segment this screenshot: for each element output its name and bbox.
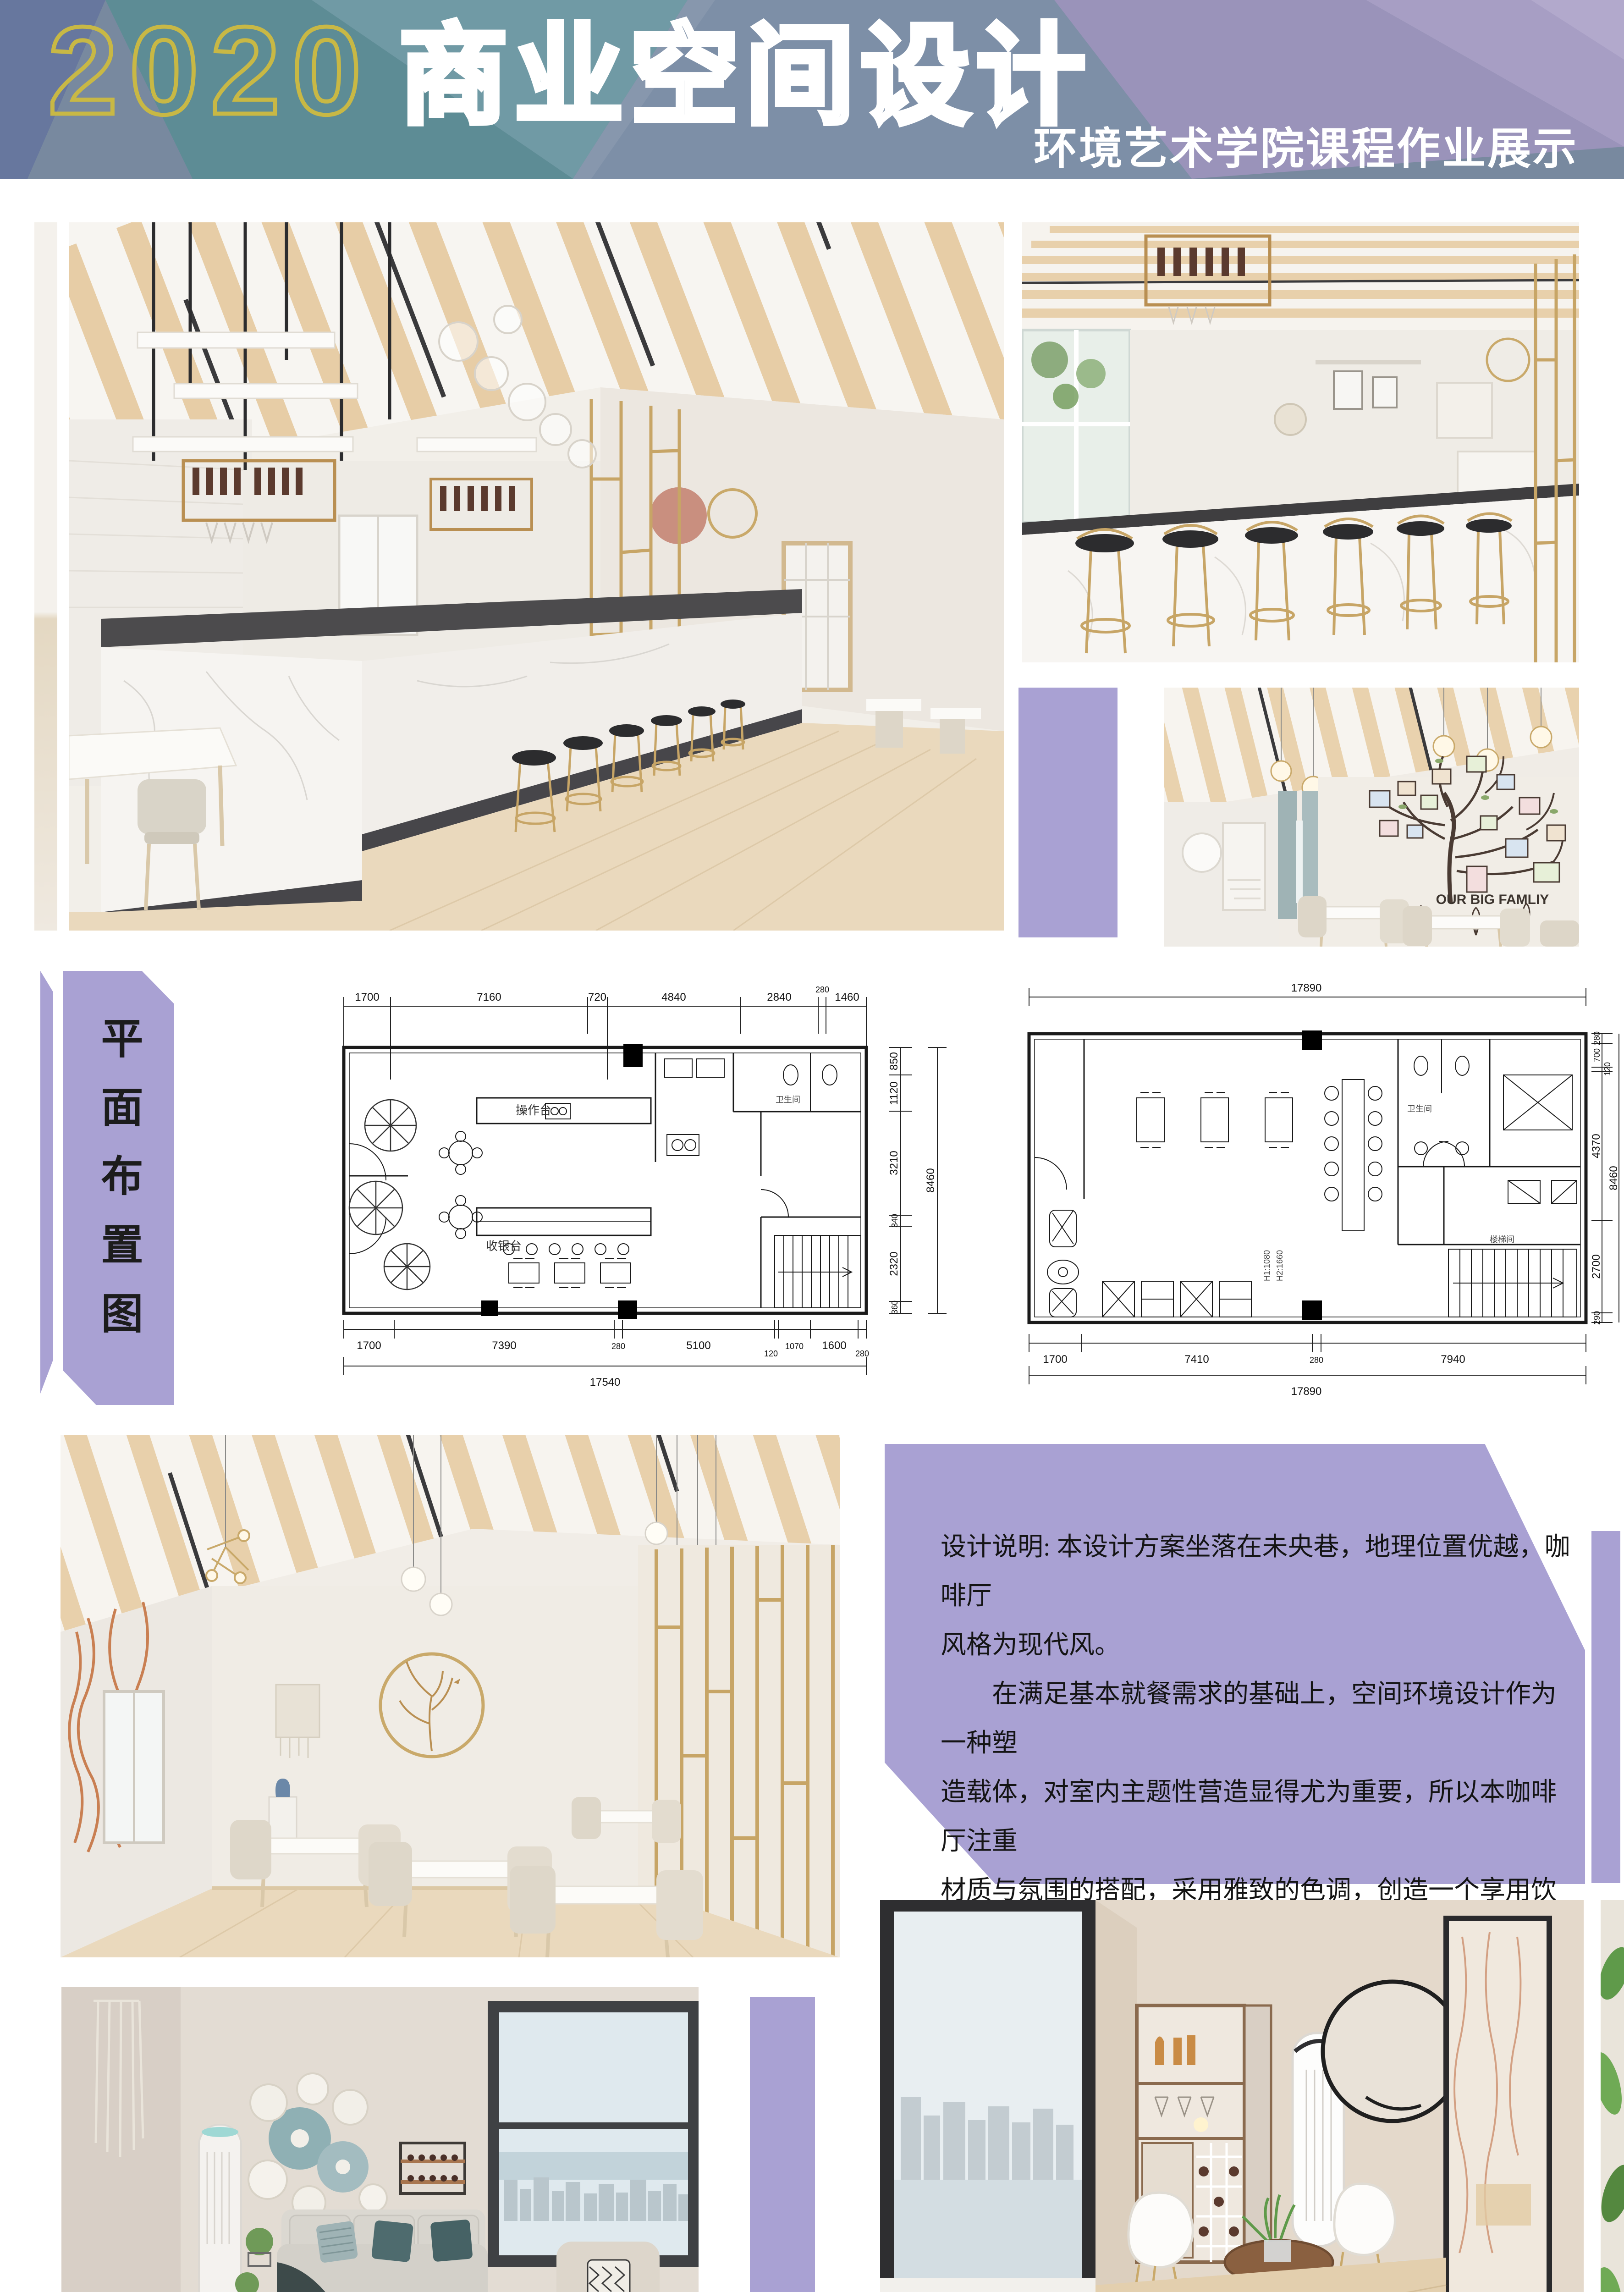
dim-label: 280 xyxy=(611,1342,625,1351)
description-line: 设计说明: 本设计方案坐落在未央巷，地理位置优越，咖啡厅 xyxy=(941,1523,1573,1621)
render-balcony-tea-corner xyxy=(880,1900,1584,2292)
render-lower-dining-hall xyxy=(61,1435,840,1957)
dim-label: 280 xyxy=(855,1349,869,1358)
description-line: 风格为现代风。 xyxy=(941,1621,1573,1670)
dim-label: 2320 xyxy=(888,1251,900,1276)
dim-label: 850 xyxy=(888,1052,900,1070)
left-edge-render-sliver xyxy=(34,222,57,931)
room-label-stairs: 楼梯间 xyxy=(1490,1235,1514,1244)
dim-label: 340 xyxy=(890,1214,899,1228)
dim-label: 360 xyxy=(890,1300,899,1314)
dim-label: 1700 xyxy=(357,1339,381,1352)
room-label-restroom: 卫生间 xyxy=(776,1095,800,1104)
dim-label: 7160 xyxy=(477,991,501,1003)
description-line: 在满足基本就餐需求的基础上，空间环境设计作为一种塑 xyxy=(941,1670,1573,1768)
render-bar-counter xyxy=(1022,222,1579,662)
page-subtitle: 环境艺术学院课程作业展示 xyxy=(1034,114,1578,176)
lavender-accent-strip-3 xyxy=(750,1997,815,2292)
dim-label: 720 xyxy=(588,991,606,1003)
dim-label: 1460 xyxy=(835,991,859,1003)
dim-label: 1600 xyxy=(822,1339,846,1352)
dim-total-label: 8460 xyxy=(1607,1166,1620,1190)
dim-label: 7390 xyxy=(492,1339,516,1352)
dim-total-label: 17890 xyxy=(1291,982,1322,994)
page-title: 商业空间设计 xyxy=(399,22,1092,131)
floor-plan-2: 17890 xyxy=(985,960,1623,1403)
dim-label: 5100 xyxy=(686,1339,710,1352)
render-main-cafe-interior xyxy=(69,222,1004,931)
dim-label: 280 xyxy=(815,985,829,994)
lavender-accent-strip-2 xyxy=(1591,1531,1620,1883)
dim-label: 280 xyxy=(1592,1031,1602,1045)
dim-label: 1700 xyxy=(1043,1353,1067,1366)
dim-label: 7940 xyxy=(1441,1353,1465,1366)
dim-total-label: 17540 xyxy=(590,1376,621,1388)
floor-plan-tag: 平面布置图 xyxy=(63,971,174,1405)
plan-annotation: H2:1660 xyxy=(1275,1250,1284,1281)
dim-label: 280 xyxy=(1310,1355,1323,1365)
floor-plan-tag-strip xyxy=(40,971,53,1394)
lavender-accent-strip-1 xyxy=(1018,688,1118,937)
dim-label: 1700 xyxy=(355,991,379,1003)
dim-label: 120 xyxy=(1603,1062,1612,1076)
dim-label: 3210 xyxy=(888,1151,900,1175)
floor-plan-label: 平面布置图 xyxy=(88,1016,149,1360)
header-banner: 2020 商业空间设计 环境艺术学院课程作业展示 xyxy=(0,0,1624,179)
dim-label: 700 xyxy=(1592,1048,1602,1062)
dim-label: 1120 xyxy=(888,1081,900,1105)
poster-canvas: 2020 商业空间设计 环境艺术学院课程作业展示 xyxy=(0,0,1624,2292)
render-lounge-sofa xyxy=(61,1987,699,2292)
plan-annotation: H1:1080 xyxy=(1262,1250,1272,1281)
floor-plan-1: 1700 7160 720 4840 2840 280 1460 xyxy=(193,960,958,1403)
dim-label: 4840 xyxy=(661,991,686,1003)
dim-label: 4370 xyxy=(1590,1134,1602,1158)
dim-label: 1070 xyxy=(785,1342,804,1351)
dim-label: 2700 xyxy=(1590,1254,1602,1278)
dim-label: 2840 xyxy=(767,991,791,1003)
year-title: 2020 xyxy=(48,8,373,133)
right-edge-plant-sliver xyxy=(1601,1900,1624,2292)
dim-label: 120 xyxy=(764,1349,778,1358)
room-label-restroom2: 卫生间 xyxy=(1407,1104,1432,1113)
render-family-wall-dining: OUR BIG FAMLIY xyxy=(1164,688,1579,947)
room-label-counter: 操作台 xyxy=(516,1103,551,1117)
dim-total-label: 17890 xyxy=(1291,1385,1322,1398)
dim-label: 290 xyxy=(1592,1311,1602,1325)
description-line: 造载体，对室内主题性营造显得尤为重要，所以本咖啡厅注重 xyxy=(941,1768,1573,1866)
dim-label: 7410 xyxy=(1184,1353,1209,1366)
family-wall-text: OUR BIG FAMLIY xyxy=(1436,892,1549,907)
dim-total-label: 8460 xyxy=(925,1168,937,1192)
